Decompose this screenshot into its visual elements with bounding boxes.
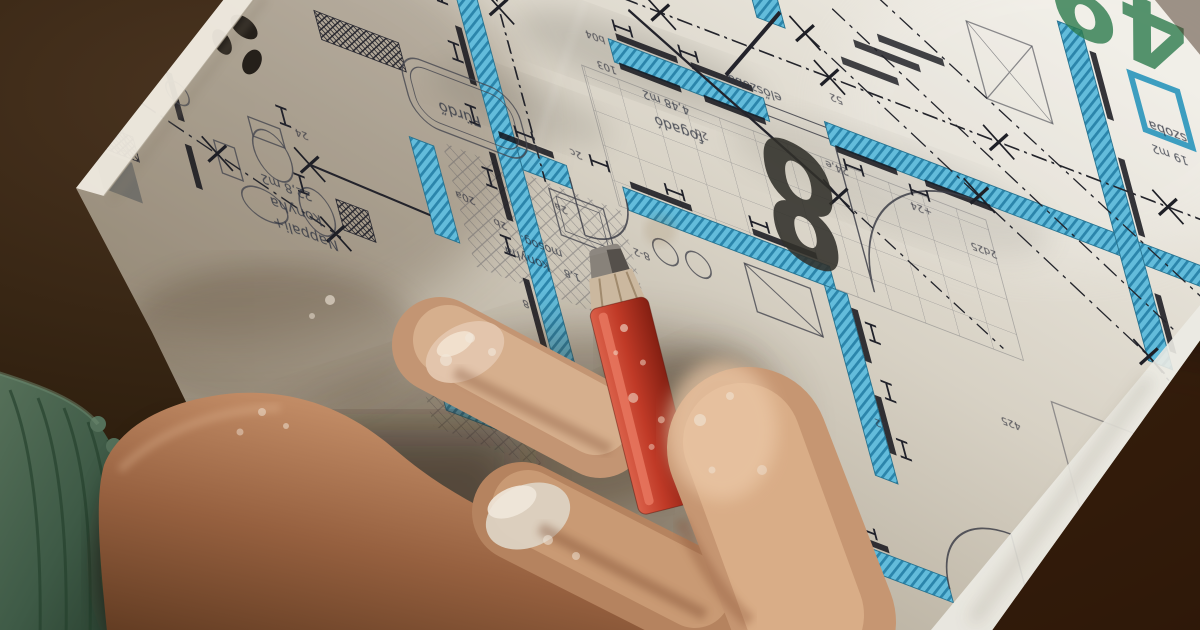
thumb-highlight xyxy=(667,360,777,500)
photo: Fürdő Nappali+ konyha 22,8 m2 fogadó 4,4… xyxy=(0,0,1200,630)
photo-frame: Fürdő Nappali+ konyha 22,8 m2 fogadó 4,4… xyxy=(0,0,1200,630)
